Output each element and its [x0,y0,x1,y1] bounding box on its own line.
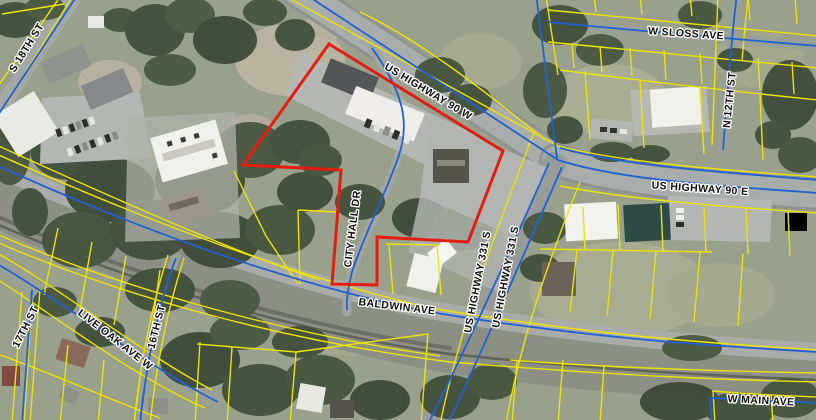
aerial-parcel-map[interactable]: S 18TH ST US HIGHWAY 90 W W SLOSS AVE N … [0,0,816,420]
map-canvas[interactable]: S 18TH ST US HIGHWAY 90 W W SLOSS AVE N … [0,0,816,420]
